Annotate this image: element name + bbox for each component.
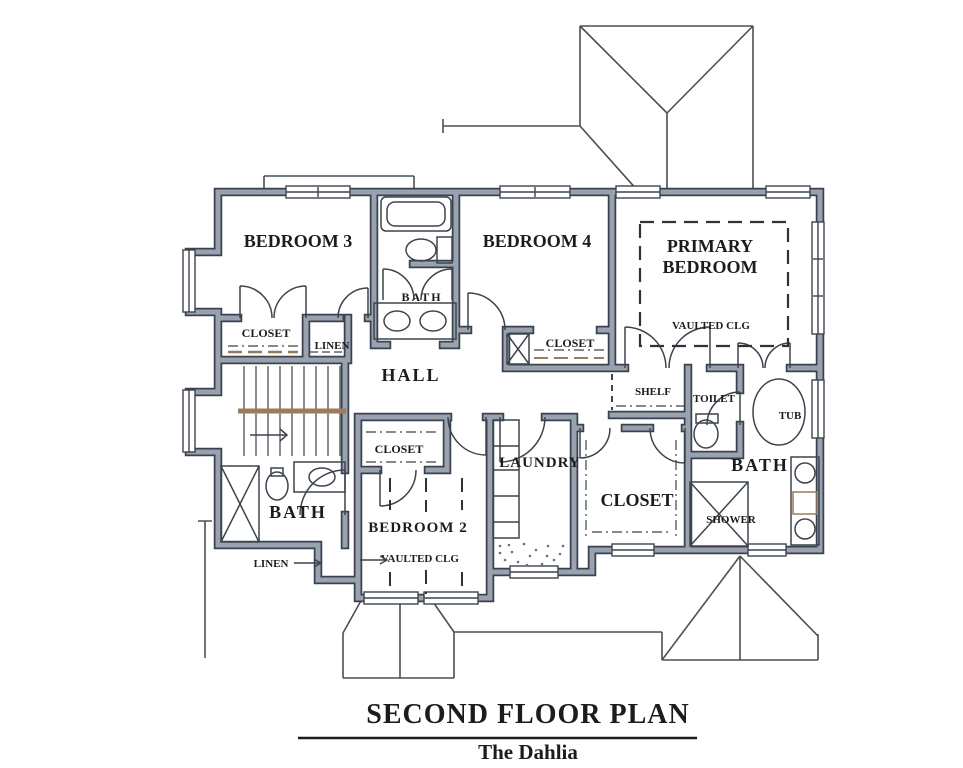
toilet-primary: [694, 414, 718, 448]
staircase: [238, 366, 346, 456]
vaulted-ceiling-lines: [390, 222, 788, 594]
door-swings: [240, 269, 790, 515]
label-primary-line2: BEDROOM: [662, 257, 757, 277]
window: [812, 222, 824, 334]
label-closet-b4: CLOSET: [546, 336, 595, 350]
label-bedroom4: BEDROOM 4: [483, 231, 592, 251]
toilet-hall: [406, 237, 452, 263]
label-bath-left: BATH: [269, 502, 327, 522]
floor-plan-drawing: BEDROOM 3 BATH BEDROOM 4 PRIMARY BEDROOM…: [0, 0, 963, 768]
label-bath-hall: BATH: [401, 290, 442, 304]
plan-title: SECOND FLOOR PLAN: [366, 699, 689, 730]
vanity-hall: [374, 303, 456, 339]
window: [766, 186, 810, 198]
window: [748, 544, 786, 556]
closet-box-b4: [507, 334, 529, 364]
window: [424, 592, 478, 604]
title-block: SECOND FLOOR PLAN The Dahlia: [298, 699, 697, 764]
room-labels: BEDROOM 3 BATH BEDROOM 4 PRIMARY BEDROOM…: [242, 231, 802, 570]
label-shower: SHOWER: [706, 514, 757, 526]
toilet-left: [266, 468, 288, 500]
label-primary-line1: PRIMARY: [667, 236, 753, 256]
label-bedroom2-vaulted: VAULTED CLG: [381, 553, 459, 565]
label-bedroom3: BEDROOM 3: [244, 231, 353, 251]
label-shelf: SHELF: [635, 386, 671, 398]
label-toilet: TOILET: [693, 393, 736, 405]
window: [364, 592, 418, 604]
label-hall: HALL: [381, 365, 440, 385]
window: [616, 186, 660, 198]
vanity-primary: [791, 457, 819, 545]
floor-plan-page: BEDROOM 3 BATH BEDROOM 4 PRIMARY BEDROOM…: [0, 0, 963, 768]
label-closet-b3: CLOSET: [242, 326, 291, 340]
window: [812, 380, 824, 438]
label-primary-vaulted: VAULTED CLG: [672, 320, 750, 332]
plan-subtitle: The Dahlia: [478, 740, 578, 764]
label-linen-hall: LINEN: [315, 340, 350, 352]
laundry-floor-texture: [499, 543, 565, 567]
linen-pointer-arrow: [294, 556, 387, 567]
window: [286, 186, 350, 198]
label-laundry: LAUNDRY: [499, 455, 580, 471]
bathtub-hall: [381, 197, 451, 231]
window: [183, 390, 195, 452]
window: [612, 544, 654, 556]
window: [500, 186, 570, 198]
label-bath-primary: BATH: [731, 455, 789, 475]
window: [183, 250, 195, 312]
label-tub: TUB: [779, 410, 802, 422]
label-closet-b2: CLOSET: [375, 442, 424, 456]
shower-left: [221, 466, 259, 542]
label-linen-left: LINEN: [254, 558, 289, 570]
laundry-counter: [493, 420, 519, 538]
window: [510, 566, 558, 578]
label-bedroom2: BEDROOM 2: [368, 520, 467, 536]
label-closet-walkin: CLOSET: [600, 490, 673, 510]
